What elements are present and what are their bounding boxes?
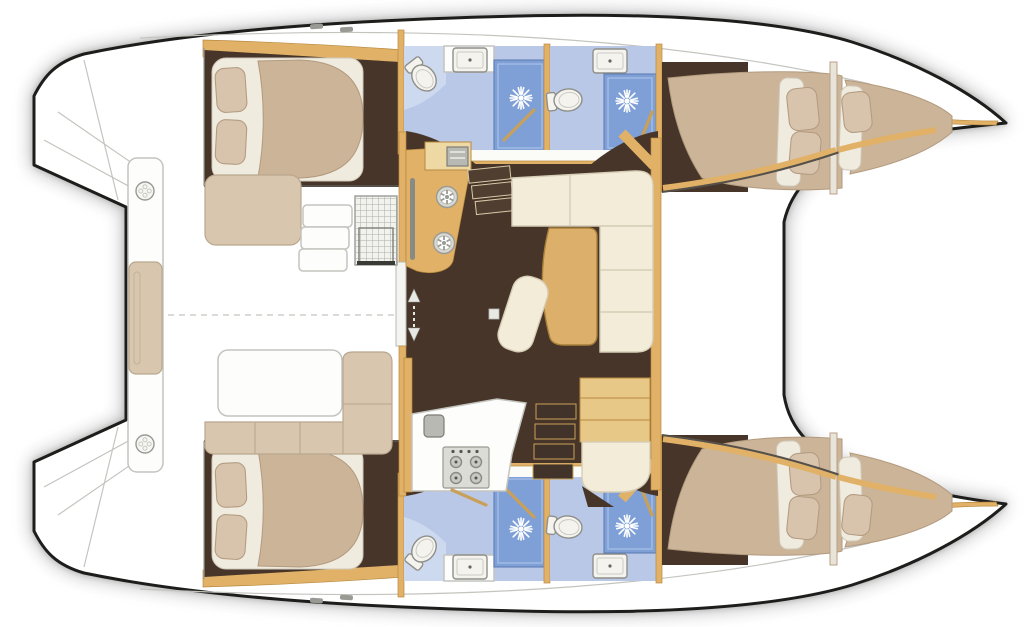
saloon-aft-wall — [399, 132, 406, 262]
shower-head-icon — [510, 87, 532, 109]
sofa-right — [600, 226, 653, 352]
nav-station — [580, 378, 650, 492]
bed-pillow — [215, 119, 247, 165]
deck-hatch — [136, 435, 154, 453]
stove-burners — [443, 447, 489, 488]
forward-cabin — [662, 62, 842, 194]
grid-hatch — [355, 196, 397, 265]
screenshot-root: Catamaran interior layout — overhead flo… — [0, 0, 1024, 627]
bed-quilt — [258, 60, 363, 178]
dining-table — [542, 228, 597, 345]
floor-plan — [0, 0, 1024, 627]
galley-sink — [424, 415, 444, 437]
sofa-top — [512, 171, 653, 226]
cockpit-steps — [299, 205, 352, 271]
cabin-partition — [830, 62, 837, 194]
floor-hatch — [489, 309, 499, 319]
bed-pillow — [841, 91, 873, 134]
sink — [593, 49, 627, 73]
sliding-door — [396, 262, 406, 346]
nav-desk — [580, 378, 650, 442]
shower-head-icon — [616, 90, 638, 112]
cockpit-table — [218, 350, 342, 416]
sink — [453, 48, 487, 72]
galley-ring-burner — [437, 187, 458, 208]
saloon — [396, 132, 661, 507]
nav-seat — [582, 442, 650, 492]
galley-ring-burner — [434, 233, 455, 254]
deck-hatch — [136, 182, 154, 200]
bed-pillow — [786, 87, 820, 132]
bed-pillow — [215, 67, 248, 113]
shower-stall — [494, 60, 546, 152]
galley-wall-trim — [404, 358, 412, 492]
counter-handrail — [410, 178, 415, 260]
cockpit-side-seat — [205, 175, 301, 245]
transom-bench — [128, 158, 163, 472]
